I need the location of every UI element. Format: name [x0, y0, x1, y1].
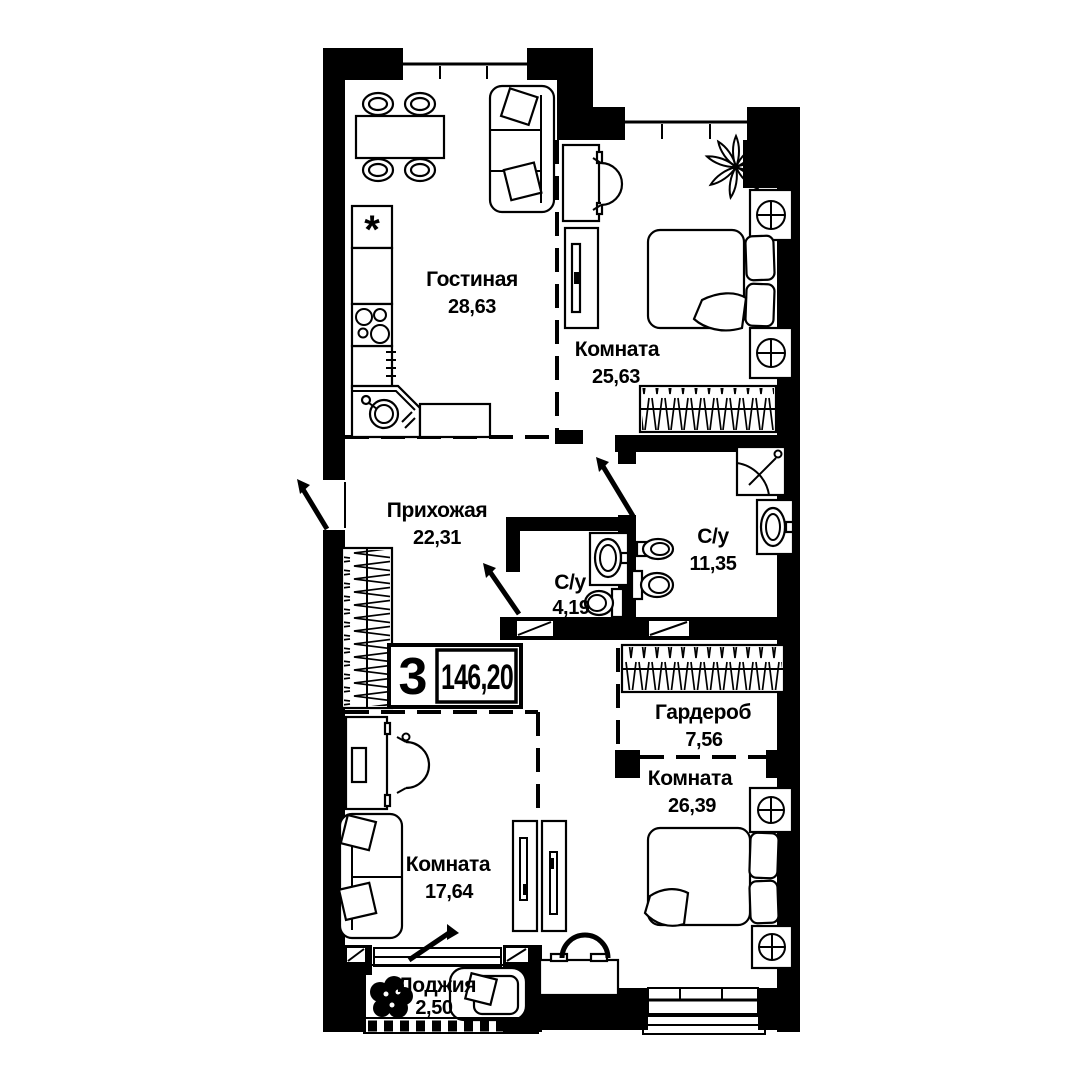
wall-wardrobe-block-left	[615, 750, 640, 778]
pillow-icon	[341, 815, 376, 850]
living-room-furniture: *	[352, 86, 554, 437]
wall-bath-left-upper	[618, 435, 636, 464]
floor-plan-drawing: *	[0, 0, 1080, 1080]
wall-cap	[555, 430, 583, 444]
bath-small-fixtures	[585, 533, 628, 617]
vent-shaft-icon	[752, 926, 792, 968]
wardrobe-hangers-icon	[622, 645, 784, 692]
sofa-icon	[339, 814, 402, 938]
threshold-bath-small	[516, 620, 554, 637]
bidet-icon	[637, 539, 673, 559]
room-label-living: Гостиная	[426, 268, 518, 291]
fridge-icon: *	[352, 206, 392, 252]
sliding-door-icon	[513, 821, 537, 931]
counter-icon	[420, 404, 490, 437]
room-area-bedroom-top: 25,63	[592, 366, 640, 388]
room-area-living: 28,63	[448, 296, 496, 318]
blanket-icon	[694, 293, 746, 330]
pillow-icon	[749, 881, 778, 924]
sink-icon	[757, 500, 793, 554]
door-swing-icon	[601, 463, 633, 516]
door-opening	[323, 480, 345, 530]
room-label-hallway: Прихожая	[387, 499, 487, 522]
toilet-icon	[632, 571, 673, 599]
window-bedroom1	[625, 107, 747, 140]
sofa-icon	[490, 86, 554, 212]
bath-big-fixtures	[632, 447, 793, 599]
door-leaf-tip	[447, 924, 459, 940]
window-living	[403, 48, 527, 80]
room-label-loggia: Лоджия	[398, 974, 476, 997]
fridge-glyph: *	[364, 208, 380, 252]
desk-icon	[346, 717, 390, 809]
desk-icon	[563, 145, 602, 221]
wall-left-upper	[323, 48, 345, 480]
wall-wardrobe-block-right	[766, 750, 795, 778]
room-label-wardrobe: Гардероб	[655, 701, 751, 724]
wardrobe-room-furniture	[622, 645, 784, 692]
sliding-door-icon	[542, 821, 566, 931]
dining-table-icon	[356, 93, 444, 181]
toilet-icon	[585, 589, 623, 617]
room-label-bedroom-top: Комната	[575, 338, 660, 361]
bed-icon	[645, 828, 779, 926]
bed-icon	[648, 230, 775, 330]
door-swing-icon	[488, 569, 519, 614]
entrance-door	[297, 479, 345, 530]
room-label-bedroom-right: Комната	[648, 767, 733, 790]
room-area-bedroom-right: 26,39	[668, 795, 716, 817]
area-badge: 3 146,20	[389, 645, 521, 707]
room-label-bath-small: С/у	[554, 571, 586, 594]
wardrobe-hangers-icon	[640, 386, 776, 432]
wall-corner-step	[557, 48, 593, 140]
door-bath-big	[596, 457, 633, 516]
room-label-bedroom-left: Комната	[406, 853, 491, 876]
pillow-icon	[339, 883, 376, 920]
bedroom2-furniture	[540, 788, 792, 995]
shower-icon	[737, 447, 785, 495]
room-area-wardrobe: 7,56	[685, 729, 723, 751]
wall-bath-small-left	[506, 517, 520, 572]
pillow-icon	[504, 163, 542, 201]
pillow-icon	[745, 284, 774, 327]
room-area-hallway: 22,31	[413, 527, 461, 549]
sink-icon	[590, 533, 628, 585]
bedroom3-furniture	[339, 717, 566, 938]
dressing-table-icon	[540, 935, 618, 995]
pillow-icon	[749, 833, 779, 879]
room-label-bath-big: С/у	[697, 525, 729, 548]
floor-plan-page: *	[0, 0, 1080, 1080]
threshold-bath-big	[648, 620, 690, 637]
wall-right	[777, 140, 800, 1032]
wardrobe-hangers-icon	[342, 548, 392, 708]
vent-shaft-icon	[750, 788, 792, 832]
pillow-icon	[745, 236, 775, 281]
badge-rooms-count: 3	[399, 648, 428, 706]
chair-icon	[397, 734, 429, 794]
hallway-furniture: 3 146,20	[342, 548, 521, 708]
room-area-bath-big: 11,35	[690, 553, 737, 575]
vent-shaft-icon	[750, 328, 792, 378]
kitchen-sink-icon	[352, 386, 490, 437]
room-area-bedroom-left: 17,64	[425, 881, 474, 903]
badge-total-area: 146,20	[441, 658, 513, 697]
room-area-loggia: 2,50	[415, 997, 453, 1019]
room-area-bath-small: 4,19	[552, 597, 590, 619]
window-bedroom2	[643, 988, 765, 1034]
wall-bath-small-top	[506, 517, 636, 531]
vent-shaft-icon	[750, 190, 792, 240]
tv-shelf-icon	[565, 228, 598, 328]
